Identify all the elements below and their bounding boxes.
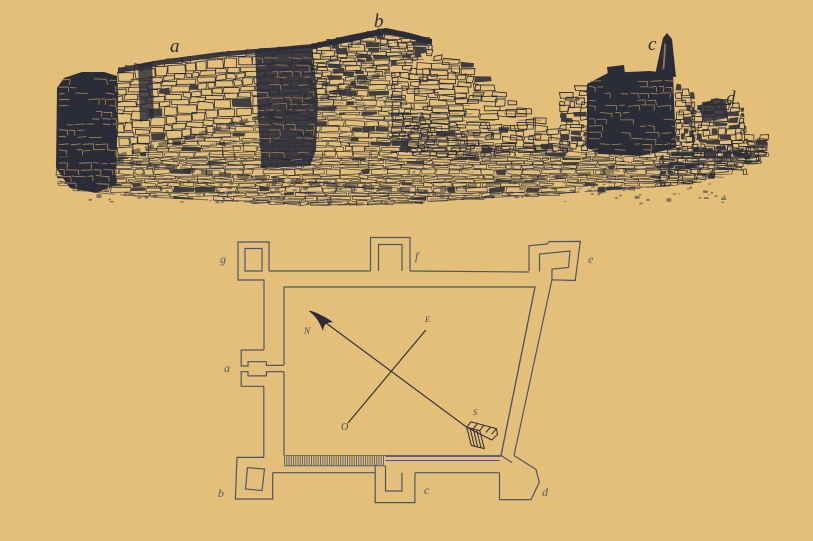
svg-text:g: g [220, 252, 226, 266]
svg-text:a: a [224, 361, 230, 375]
svg-text:b: b [218, 486, 224, 500]
svg-text:e: e [588, 252, 594, 266]
svg-text:a: a [170, 36, 180, 57]
svg-text:O: O [341, 422, 348, 433]
svg-text:c: c [648, 34, 657, 55]
svg-text:d: d [726, 88, 736, 109]
svg-text:N: N [303, 326, 311, 336]
svg-text:S: S [473, 408, 477, 417]
svg-text:E: E [424, 315, 430, 324]
svg-text:b: b [374, 11, 384, 32]
svg-text:c: c [424, 483, 430, 497]
svg-text:d: d [542, 485, 549, 499]
